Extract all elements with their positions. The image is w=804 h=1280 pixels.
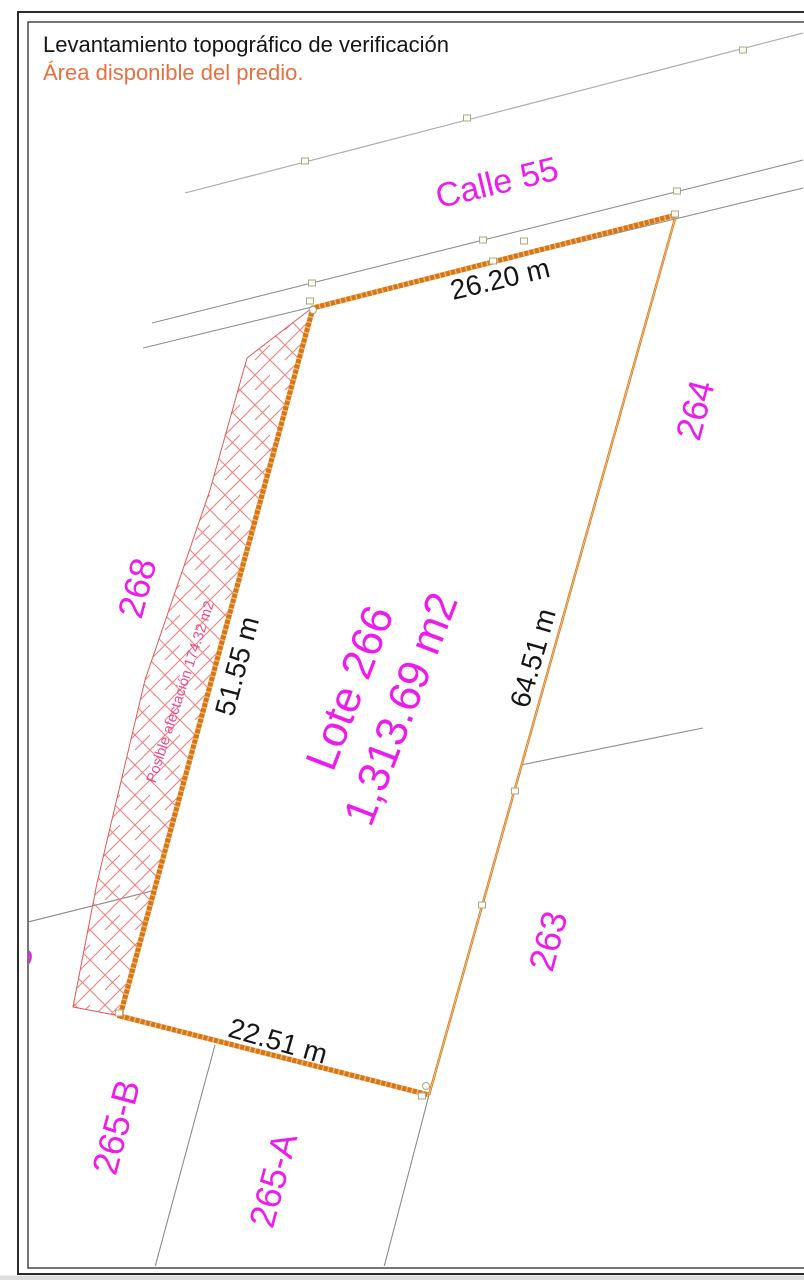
neighbor-label-268: 268 (109, 554, 164, 623)
survey-marker (521, 238, 528, 244)
survey-marker (423, 1083, 430, 1090)
dimension-bottom: 22.51 m (225, 1012, 331, 1070)
survey-marker (674, 188, 681, 194)
neighbor-label-264: 264 (667, 376, 722, 445)
survey-marker (309, 280, 316, 286)
survey-marker (490, 258, 497, 264)
boundary-line-263-264 (521, 728, 703, 765)
survey-marker (479, 902, 486, 908)
survey-marker (310, 307, 317, 314)
boundary-line-265b-265a (155, 1045, 215, 1267)
sheet-bottom-shadow (0, 1276, 804, 1280)
survey-marker (480, 237, 487, 243)
survey-marker (464, 115, 471, 121)
survey-marker (307, 298, 314, 304)
survey-marker (302, 158, 309, 164)
neighbor-label-265a: 265-A (241, 1128, 305, 1231)
neighbor-label-partial: 265 (0, 941, 42, 1010)
survey-drawing: Calle 55 26.20 m 64.51 m 22.51 m 51.55 m… (0, 0, 804, 1280)
street-name-label: Calle 55 (432, 150, 562, 216)
survey-sheet: Calle 55 26.20 m 64.51 m 22.51 m 51.55 m… (0, 0, 804, 1280)
neighbor-label-265b: 265-B (84, 1075, 148, 1178)
survey-marker (672, 211, 679, 217)
survey-marker (116, 1010, 123, 1016)
survey-marker (740, 47, 747, 53)
dimension-right: 64.51 m (504, 605, 562, 711)
sheet-subtitle: Área disponible del predio. (43, 60, 304, 86)
boundary-line-265a-263 (384, 1095, 429, 1267)
survey-marker (512, 788, 519, 794)
sheet-title: Levantamiento topográfico de verificació… (43, 32, 449, 58)
survey-marker (419, 1093, 426, 1099)
neighbor-label-263: 263 (520, 907, 575, 976)
